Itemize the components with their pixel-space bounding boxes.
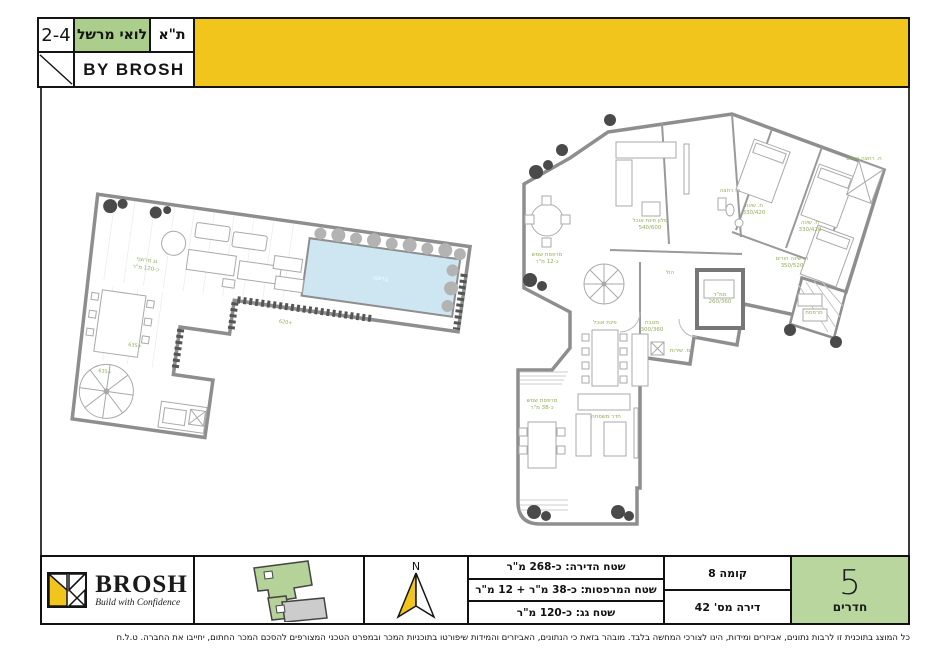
room-label: ח. שינה [801, 220, 819, 226]
brosh-logo-cell: BROSH Build with Confidence [42, 557, 195, 623]
room-label: מרפסת [805, 310, 823, 316]
apartment-area: שטח הדירה: כ-268 מ"ר [469, 557, 663, 580]
apartment-plan: מרפסת שמש כ-12 מ"ר סלון פינת אוכל 540/60… [492, 102, 922, 552]
floor-number: קומה 8 [665, 557, 790, 591]
room-label: מטבח [645, 320, 659, 326]
room-label: סלון פינת אוכל [633, 217, 668, 224]
street-number: 2-4 [39, 19, 75, 51]
brosh-logo-icon [47, 572, 87, 608]
brand-name: BROSH [95, 572, 188, 597]
room-label: ח. רחצה [720, 188, 741, 194]
room-label-dims: כ-38 מ"ר [530, 405, 553, 411]
room-label: הול [666, 269, 675, 276]
unit-cell: קומה 8 דירה מס' 42 [665, 557, 792, 623]
room-label-dims: 540/600 [639, 225, 662, 231]
rooms-count: 5 [839, 566, 861, 600]
terraces-area: שטח המרפסות: כ-38 מ"ר + 12 מ"ר [469, 580, 663, 603]
room-label-dims: 300/360 [641, 327, 664, 333]
key-plan-icon [220, 558, 338, 622]
level-mark: 620+ [278, 319, 292, 327]
diagonal-mark [39, 53, 75, 86]
apartment-number: דירה מס' 42 [665, 591, 790, 623]
key-plan-cell [195, 557, 365, 623]
room-label-dims: 330/420 [799, 227, 822, 233]
room-label: פינת אוכל [593, 319, 617, 326]
room-label: ח. רחצה הורים [846, 156, 882, 162]
disclaimer-text: כל המוצג בתוכנית זו לרבות נתונים, אביזרי… [40, 633, 910, 643]
room-label-dims: כ-12 מ"ר [535, 259, 558, 265]
areas-cell: שטח הדירה: כ-268 מ"ר שטח המרפסות: כ-38 מ… [469, 557, 665, 623]
byline: BY BROSH [75, 53, 193, 86]
north-arrow-icon: N [387, 559, 445, 621]
rooms-label: חדרים [833, 600, 867, 614]
room-label: מ. שירות [670, 348, 691, 354]
roof-area: שטח גג: כ-120 מ"ר [469, 602, 663, 623]
north-arrow-cell: N [365, 557, 469, 623]
diagonal-line-icon [39, 53, 73, 86]
info-table: BROSH Build with Confidence N שטח הדירה:… [40, 555, 910, 625]
room-label: מרפסת שמש [532, 252, 563, 258]
brand-tagline: Build with Confidence [95, 599, 180, 609]
rooms-cell: 5 חדרים [792, 557, 908, 623]
room-label: ח. שינה הורים [776, 256, 809, 262]
street-name: לואי מרשל [75, 19, 151, 51]
room-label-dims: 330/420 [743, 210, 766, 216]
room-label: ח. שינה [745, 203, 763, 209]
room-label: מרפסת שמש [527, 398, 558, 404]
north-label: N [412, 560, 420, 573]
room-label: ממ"ד [713, 292, 726, 298]
room-label-dims: 350/520 [781, 263, 804, 269]
room-label: חדר משפחה [591, 414, 621, 420]
city-abbrev: ת"א [151, 19, 193, 51]
spiral-stair-apartment [584, 264, 624, 304]
project-logo-block: 2-4 לואי מרשל ת"א BY BROSH [37, 17, 195, 88]
room-label-dims: 260/360 [709, 299, 732, 305]
